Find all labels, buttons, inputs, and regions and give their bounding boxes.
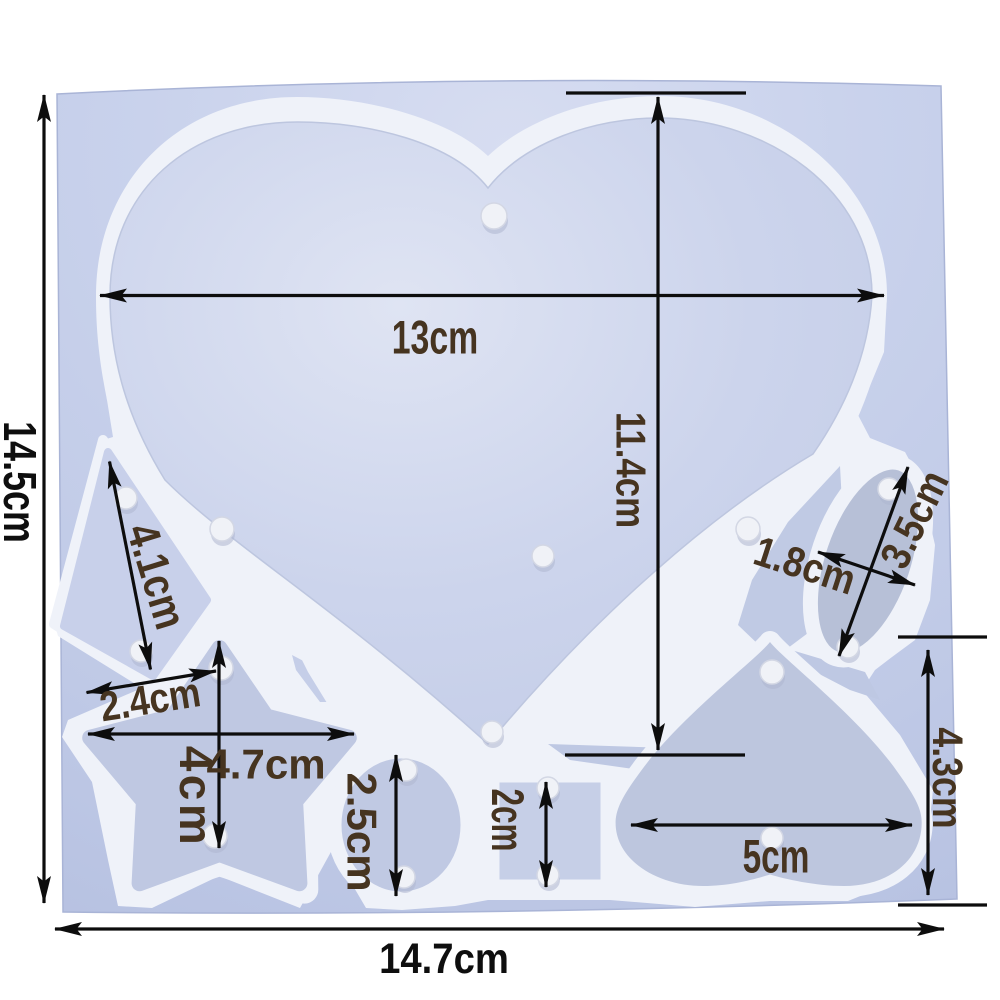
svg-text:14.5cm: 14.5cm [0, 421, 45, 543]
svg-text:4.3cm: 4.3cm [923, 727, 971, 828]
svg-text:13cm: 13cm [392, 311, 479, 364]
svg-text:4.7cm: 4.7cm [206, 741, 325, 788]
svg-text:5cm: 5cm [743, 830, 810, 883]
svg-text:11.4cm: 11.4cm [607, 412, 654, 528]
svg-text:2.5cm: 2.5cm [338, 772, 385, 891]
svg-text:4cm: 4cm [170, 746, 222, 849]
svg-text:2cm: 2cm [482, 788, 532, 851]
svg-text:14.7cm: 14.7cm [379, 934, 509, 983]
